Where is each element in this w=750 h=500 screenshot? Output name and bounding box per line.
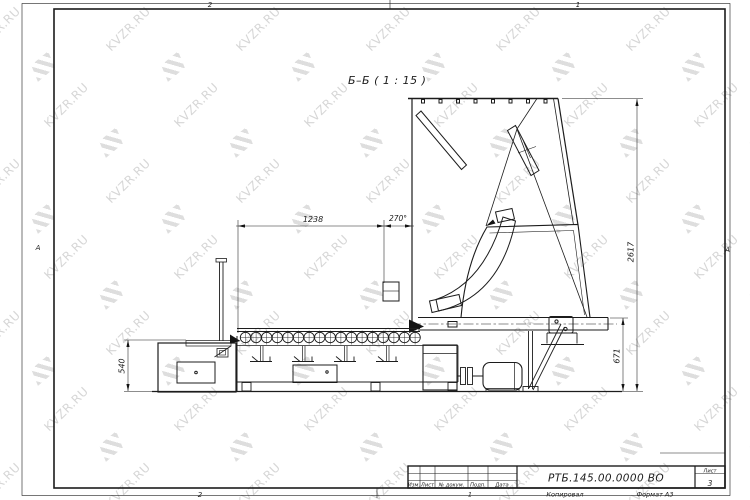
footer-zone: 1 — [468, 491, 472, 499]
tb-col-ndoc: № докум. — [438, 482, 465, 488]
zone-right: А — [724, 246, 730, 254]
hopper-deflector-bar — [416, 111, 467, 170]
hangers — [261, 346, 390, 362]
footer-strip: 1 Копировал Формат А3 — [468, 491, 674, 499]
tb-doc-number: РТБ.145.00.0000 ВО — [548, 473, 664, 485]
dim-1238: 1238 — [303, 215, 323, 224]
roller-conveyor — [152, 329, 622, 392]
dimensions: 1238 270° 2617 671 540 — [118, 99, 644, 392]
coupling — [461, 368, 466, 385]
feeder-box — [158, 259, 241, 393]
material-pile — [461, 225, 590, 318]
footer-format: Формат А3 — [636, 491, 673, 499]
drive-unit — [423, 345, 522, 392]
tb-col-izm: Изм. — [408, 482, 420, 488]
dim-671: 671 — [613, 348, 622, 363]
motor — [483, 363, 522, 391]
tb-col-data: Дата — [494, 482, 508, 488]
title-block: Изм. Лист № докум. Подп. Дата РТБ.145.00… — [408, 453, 725, 488]
footer-copied: Копировал — [546, 491, 583, 499]
zone-top-right: 1 — [576, 1, 580, 9]
tb-sheet-word: Лист — [702, 468, 717, 474]
drawing-sheet: KVZR.RUKVZR.RUKVZR.RUKVZR.RUKVZR.RUKVZR.… — [0, 0, 750, 500]
tb-col-list: Лист — [420, 482, 435, 488]
discharge-conveyor — [409, 317, 617, 345]
hopper-bolts — [422, 100, 548, 104]
tb-col-podp: Подп. — [470, 482, 486, 488]
inspection-window — [177, 362, 215, 383]
hopper-cylinder — [508, 126, 540, 176]
section-label: Б–Б ( 1 : 15 ) — [348, 74, 426, 87]
support-frame — [523, 324, 565, 392]
technical-drawing: 2 1 2 А А Б–Б ( 1 : 15 ) — [0, 0, 750, 500]
hopper-side-box — [383, 282, 399, 301]
dim-2617: 2617 — [627, 241, 636, 262]
hopper — [383, 99, 587, 332]
zone-left: А — [35, 244, 41, 252]
under-drive-box — [293, 365, 337, 383]
gearbox — [423, 345, 457, 390]
frame-brackets — [250, 357, 398, 362]
zone-top-left: 2 — [208, 1, 213, 9]
zone-bottom-left: 2 — [198, 491, 203, 499]
belt-left-wedge — [409, 320, 424, 334]
tb-sheet-number: 3 — [708, 479, 713, 488]
dim-270: 270° — [389, 214, 407, 223]
dim-540: 540 — [118, 358, 127, 373]
